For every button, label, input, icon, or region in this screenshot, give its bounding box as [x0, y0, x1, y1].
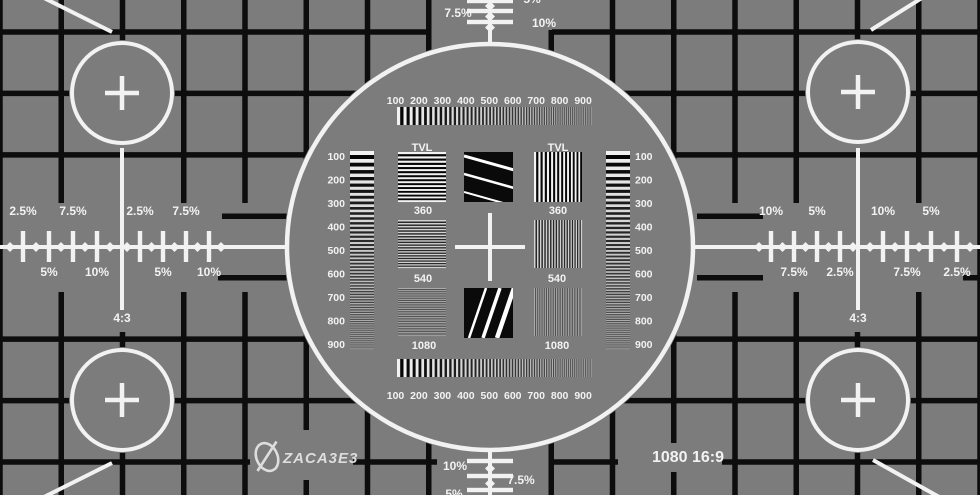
overscan-percent-label: 10% [871, 204, 895, 218]
scale-label-right: 800 [635, 316, 653, 328]
scale-label-right: 600 [635, 269, 653, 281]
scale-label-right: 100 [635, 151, 653, 163]
scale-label-left: 800 [327, 316, 345, 328]
tvl-label-right-360: 360 [549, 205, 567, 217]
tvl-wedge-left-360 [398, 152, 446, 202]
scale-label-right: 900 [635, 339, 653, 351]
test-pattern-scene: 1001001001002002002002003003003003004004… [0, 0, 980, 495]
tvl-wedge-left-540 [398, 220, 446, 268]
overscan-percent-label: 10% [759, 204, 783, 218]
scale-label-left: 200 [327, 175, 345, 187]
tvl-title-right: TVL [548, 142, 569, 154]
tvl-label-right-540: 540 [548, 273, 566, 285]
logo-text: ZACA3E3 [282, 450, 358, 467]
overscan-percent-label: 7.5% [507, 473, 535, 487]
tvl-label-right-1080: 1080 [545, 340, 569, 352]
scale-label-left: 400 [327, 222, 345, 234]
scale-label-right: 500 [635, 245, 653, 257]
overscan-tick [905, 231, 909, 262]
overscan-percent-label: 7.5% [780, 265, 808, 279]
sweep-label-bottom: 800 [551, 390, 569, 402]
tvl-label-left-1080: 1080 [412, 340, 436, 352]
overscan-percent-label: 7.5% [59, 204, 87, 218]
test-pattern-screenshot: 1001001001002002002002003003003003004004… [0, 0, 980, 495]
tvl-wedge-right-1080 [534, 288, 582, 336]
scale-label-right: 300 [635, 198, 653, 210]
sweep-label-top: 400 [457, 95, 475, 107]
overscan-tick [95, 231, 99, 262]
sweep-label-top: 100 [387, 95, 405, 107]
sweep-label-top: 200 [410, 95, 428, 107]
scale-label-left: 900 [327, 339, 345, 351]
overscan-tick [207, 231, 211, 262]
sweep-label-bottom: 900 [574, 390, 592, 402]
overscan-percent-label: 5% [808, 204, 826, 218]
tvl-label-left-360: 360 [414, 205, 432, 217]
overscan-percent-label: 10% [532, 16, 556, 30]
tvl-wedge-right-540 [534, 220, 582, 268]
sweep-label-bottom: 300 [434, 390, 452, 402]
overscan-tick [881, 231, 885, 262]
overscan-percent-label: 5% [40, 265, 58, 279]
corner-target [69, 347, 175, 453]
resolution-scale-right [606, 151, 630, 349]
overscan-tick [769, 231, 773, 262]
scale-label-right: 400 [635, 222, 653, 234]
scale-label-left: 500 [327, 245, 345, 257]
overscan-tick [815, 231, 819, 262]
overscan-tick [71, 231, 75, 262]
tvl-wedge-left-1080 [398, 288, 446, 336]
tvl-label-left-540: 540 [414, 273, 432, 285]
corner-target [805, 39, 911, 145]
sweep-label-top: 800 [551, 95, 569, 107]
aspect-label-right: 4:3 [849, 311, 867, 325]
overscan-tick [467, 459, 513, 463]
sweep-label-top: 500 [481, 95, 499, 107]
overscan-percent-label: 2.5% [9, 204, 37, 218]
aspect-label-left: 4:3 [113, 311, 131, 325]
corner-target [69, 40, 175, 146]
overscan-percent-label: 10% [197, 265, 221, 279]
sweep-label-bottom: 500 [481, 390, 499, 402]
overscan-tick [138, 231, 142, 262]
overscan-percent-label: 7.5% [172, 204, 200, 218]
overscan-tick [184, 231, 188, 262]
sweep-label-top: 900 [574, 95, 592, 107]
scale-label-left: 100 [327, 151, 345, 163]
overscan-percent-label: 5% [445, 487, 463, 495]
sweep-label-top: 700 [527, 95, 545, 107]
sweep-label-top: 600 [504, 95, 522, 107]
sweep-label-bottom: 200 [410, 390, 428, 402]
scale-label-right: 700 [635, 292, 653, 304]
sweep-label-bottom: 100 [387, 390, 405, 402]
overscan-percent-label: 7.5% [893, 265, 921, 279]
overscan-tick [161, 231, 165, 262]
resolution-sweep-bottom [397, 359, 592, 377]
overscan-percent-label: 10% [85, 265, 109, 279]
sweep-label-top: 300 [434, 95, 452, 107]
overscan-tick [838, 231, 842, 262]
scale-label-right: 200 [635, 175, 653, 187]
resolution-sweep-top [397, 107, 592, 125]
overscan-percent-label: 10% [443, 459, 467, 473]
overscan-percent-label: 2.5% [943, 265, 971, 279]
tvl-title-left: TVL [412, 142, 433, 154]
corner-target [805, 347, 911, 453]
tvl-wedge-right-360 [534, 152, 582, 202]
overscan-tick [21, 231, 25, 262]
overscan-tick [929, 231, 933, 262]
overscan-tick [792, 231, 796, 262]
overscan-percent-label: 5% [523, 0, 541, 6]
overscan-percent-label: 7.5% [444, 6, 472, 20]
sweep-label-bottom: 400 [457, 390, 475, 402]
overscan-percent-label: 2.5% [126, 204, 154, 218]
scale-label-left: 600 [327, 269, 345, 281]
sweep-label-bottom: 600 [504, 390, 522, 402]
overscan-tick [47, 231, 51, 262]
overscan-percent-label: 5% [154, 265, 172, 279]
overscan-percent-label: 2.5% [826, 265, 854, 279]
overscan-tick [467, 474, 513, 478]
format-label: 1080 16:9 [652, 449, 724, 466]
resolution-scale-left [350, 151, 374, 349]
sweep-label-bottom: 700 [527, 390, 545, 402]
overscan-tick [955, 231, 959, 262]
scale-label-left: 300 [327, 198, 345, 210]
overscan-percent-label: 5% [922, 204, 940, 218]
scale-label-left: 700 [327, 292, 345, 304]
